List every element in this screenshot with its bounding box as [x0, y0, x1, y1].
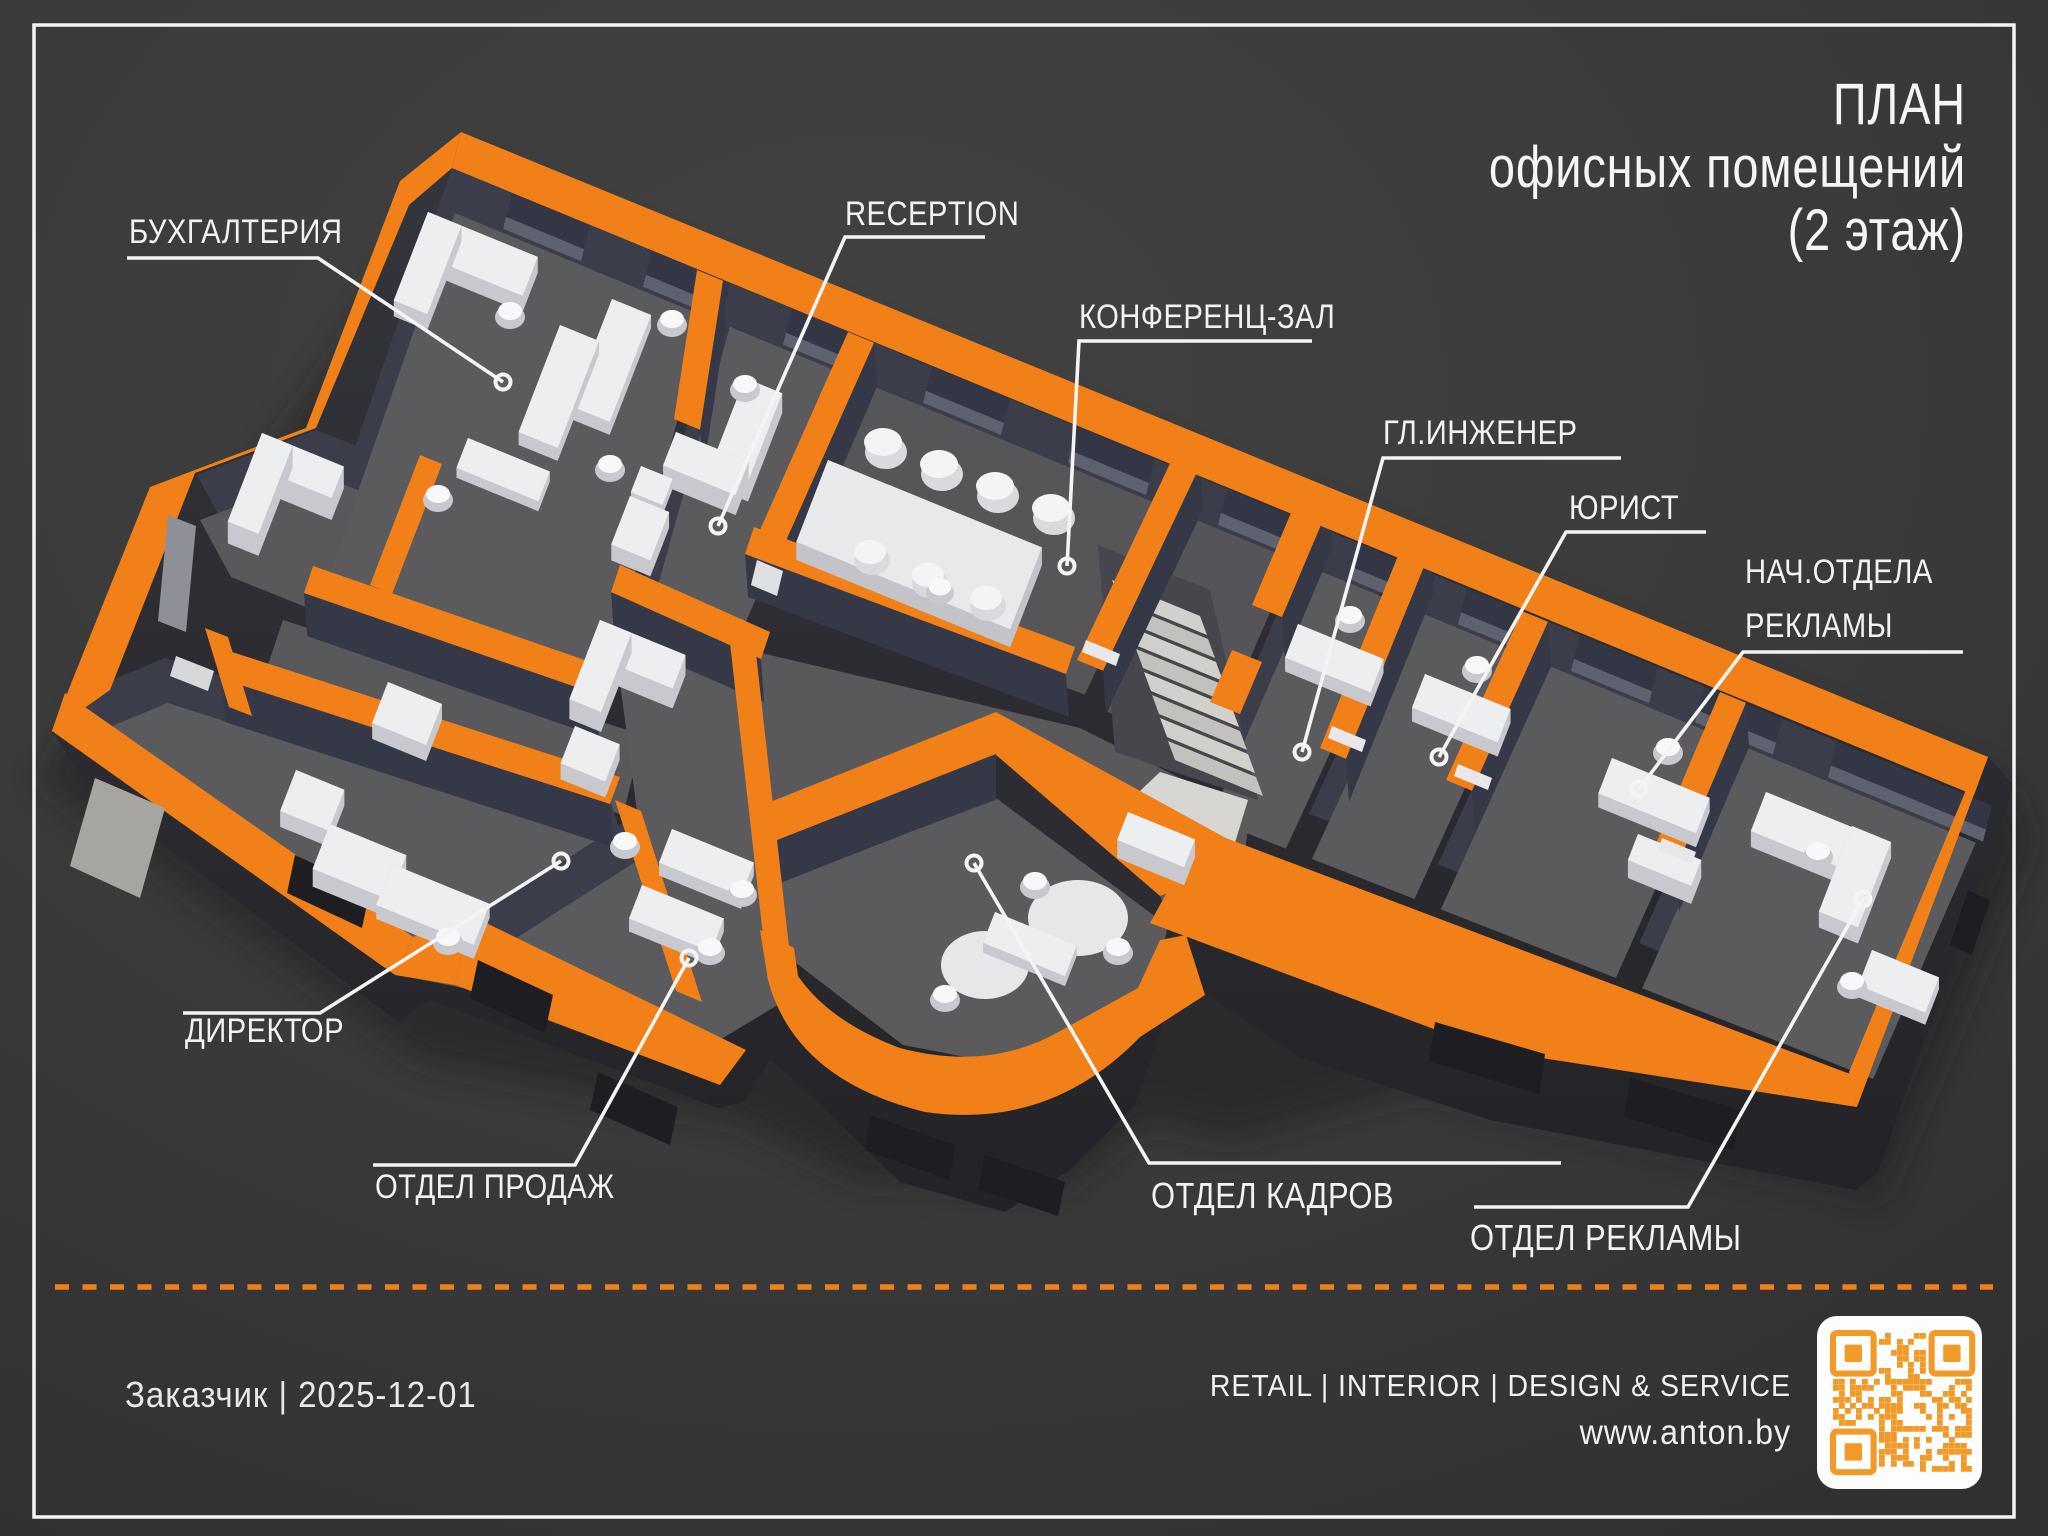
svg-text:НАЧ.ОТДЕЛА: НАЧ.ОТДЕЛА	[1745, 552, 1933, 591]
svg-text:ГЛ.ИНЖЕНЕР: ГЛ.ИНЖЕНЕР	[1383, 413, 1577, 452]
svg-text:офисных помещений: офисных помещений	[1489, 135, 1966, 200]
svg-text:ОТДЕЛ РЕКЛАМЫ: ОТДЕЛ РЕКЛАМЫ	[1470, 1219, 1742, 1259]
svg-text:www.anton.by: www.anton.by	[1579, 1414, 1791, 1453]
svg-text:RETAIL | INTERIOR | DESIGN & S: RETAIL | INTERIOR | DESIGN & SERVICE	[1210, 1369, 1791, 1403]
svg-text:Заказчик | 2025-12-01: Заказчик | 2025-12-01	[125, 1376, 477, 1416]
svg-text:ОТДЕЛ КАДРОВ: ОТДЕЛ КАДРОВ	[1151, 1177, 1394, 1217]
svg-text:КОНФЕРЕНЦ-ЗАЛ: КОНФЕРЕНЦ-ЗАЛ	[1079, 297, 1335, 336]
svg-text:ЮРИСТ: ЮРИСТ	[1569, 488, 1679, 527]
svg-text:(2 этаж): (2 этаж)	[1788, 198, 1966, 263]
svg-text:RECEPTION: RECEPTION	[845, 194, 1019, 233]
svg-text:ОТДЕЛ ПРОДАЖ: ОТДЕЛ ПРОДАЖ	[375, 1167, 615, 1206]
svg-text:ПЛАН: ПЛАН	[1833, 72, 1966, 137]
svg-text:БУХГАЛТЕРИЯ: БУХГАЛТЕРИЯ	[129, 212, 342, 251]
svg-text:ДИРЕКТОР: ДИРЕКТОР	[185, 1011, 344, 1050]
svg-text:РЕКЛАМЫ: РЕКЛАМЫ	[1745, 606, 1893, 645]
